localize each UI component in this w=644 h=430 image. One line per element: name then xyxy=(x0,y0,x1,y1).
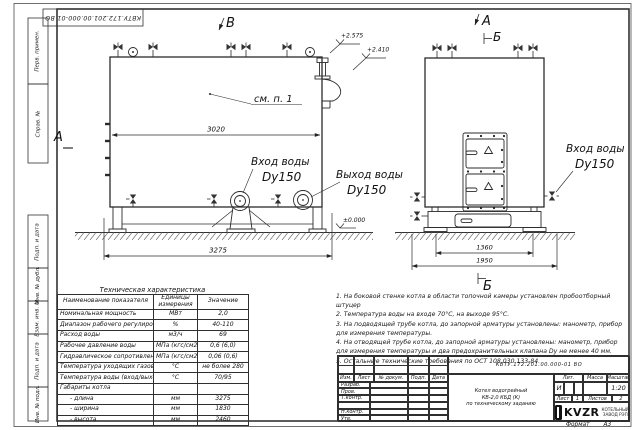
spec-value: 40-110 xyxy=(198,320,249,331)
tb-massa-label: Масса xyxy=(583,374,607,382)
tb-col-list: Лист xyxy=(354,374,374,382)
top-designation-text: КВТУ.172.201.00.000-01 ВО xyxy=(45,14,141,21)
tb-sig-cell xyxy=(429,409,448,416)
spec-value: 3275 xyxy=(198,394,249,405)
furnace-doors xyxy=(463,133,507,211)
elevation-ground: ±0.000 xyxy=(343,217,365,224)
spec-value xyxy=(198,383,249,394)
tb-listov-value: 2 xyxy=(612,395,630,402)
tb-sig-cell xyxy=(408,409,429,416)
note-item: 4. На отводящей трубе котла, до запорной… xyxy=(336,338,629,356)
stamp-podp-data-1: Подп. и дата xyxy=(28,215,48,268)
logo-sub-line2: ЗАВОД РЭП xyxy=(603,412,628,417)
callout-outlet-title: Выход воды xyxy=(336,169,403,181)
stamp-label: Инв. № дубл. xyxy=(35,266,41,304)
spec-row: Гидравлическое сопротивление котлаМПа (к… xyxy=(58,352,249,363)
tb-col-podp: Подп. xyxy=(408,374,429,382)
stamp-inv-dubl: Инв. № дубл. xyxy=(28,268,48,301)
spec-units: МПа (кгс/см2) xyxy=(154,352,198,363)
tb-row-utv: Утв. xyxy=(338,415,370,422)
note-item: 2. Температура воды на входе 70°С, на вы… xyxy=(336,310,629,319)
tb-sig-cell xyxy=(408,415,429,422)
note-item: 3. На подводящей трубе котла, до запорно… xyxy=(336,320,629,338)
callout-inlet-left-title: Вход воды xyxy=(251,156,310,168)
spec-name: Расход воды xyxy=(58,330,154,341)
dim-overall-length: 3275 xyxy=(209,247,227,255)
stamp-podp-data-2: Подп. и дата xyxy=(28,334,48,387)
elevation-top-inner: +2.410 xyxy=(367,47,389,54)
tb-sig-cell xyxy=(429,415,448,422)
tb-row-nkontr: Н.контр. xyxy=(338,409,370,416)
stamp-label: Инв. № подл. xyxy=(35,385,41,423)
spec-units: % xyxy=(154,320,198,331)
dim-base-width: 1360 xyxy=(476,244,493,252)
kvzr-logo-text: KVZR xyxy=(564,406,599,419)
spec-name: - длина xyxy=(58,394,154,405)
stamp-inv-podl: Инв. № подл. xyxy=(28,387,48,421)
drawing-sheet: 3020 3275 1360 1950 +2.575 +2.410 ±0.000… xyxy=(0,0,644,430)
door-bolts xyxy=(467,135,505,209)
format-label: Формат А3 xyxy=(566,422,611,428)
tb-sig-cell xyxy=(408,395,429,402)
spec-value: 0,6 (6,0) xyxy=(198,341,249,352)
tb-change-divider xyxy=(338,365,448,366)
view-label-a-top: А xyxy=(481,14,491,29)
tb-sig-cell xyxy=(370,388,408,395)
tb-sig-cell xyxy=(408,382,429,389)
tb-row-razrab: Разраб. xyxy=(338,382,370,389)
tb-lit-label: Лит. xyxy=(554,374,583,382)
tb-sig-cell xyxy=(429,388,448,395)
spec-name: Температура воды (вход/выход) xyxy=(58,373,154,384)
spec-name: Гидравлическое сопротивление котла xyxy=(58,352,154,363)
spec-name: Номинальная мощность xyxy=(58,309,154,320)
stamp-label: Подп. и дата xyxy=(35,223,41,260)
boiler-front-view xyxy=(410,44,559,232)
tb-sig-cell xyxy=(429,382,448,389)
tb-sig-cell xyxy=(429,402,448,409)
spec-value: 1830 xyxy=(198,405,249,416)
tb-masshtab-label: Масштаб xyxy=(607,374,630,382)
tb-company-cell: KVZR КОТЕЛЬНЫЙ ЗАВОД РЭП xyxy=(554,402,630,422)
stamp-label: Взам. инв. № xyxy=(35,299,41,336)
kvzr-logo-subtext: КОТЕЛЬНЫЙ ЗАВОД РЭП xyxy=(602,407,629,417)
spec-units: °С xyxy=(154,373,198,384)
side-valves-front-view xyxy=(410,192,559,221)
spec-row: - высотамм2460 xyxy=(58,415,249,426)
tb-product-name: Котел водогрейный КВ-2,0 КБД (К) по техн… xyxy=(448,374,554,422)
tb-sig-cell xyxy=(408,388,429,395)
spec-value: 0,06 (0,6) xyxy=(198,352,249,363)
callout-outlet-dn: Dy150 xyxy=(347,183,387,197)
spec-table-title: Техническая характеристика xyxy=(57,286,248,294)
company-logo: KVZR КОТЕЛЬНЫЙ ЗАВОД РЭП xyxy=(555,405,629,420)
boiler-side-view xyxy=(105,43,341,233)
stamp-perv-primen: Перв. примен. xyxy=(28,18,48,84)
product-name-line3: по техническому заданию xyxy=(466,401,536,408)
stamp-vzam-inv: Взам. инв. № xyxy=(28,301,48,334)
stamp-label: Справ. № xyxy=(35,110,41,137)
spec-units: мм xyxy=(154,394,198,405)
spec-units xyxy=(154,383,198,394)
tb-sig-cell xyxy=(370,409,408,416)
elevation-top-outer: +2.575 xyxy=(341,33,363,40)
spec-table: Наименование показателя Единицы измерени… xyxy=(57,294,249,426)
spec-row: - ширинамм1830 xyxy=(58,405,249,416)
tb-sig-cell xyxy=(408,402,429,409)
format-word: Формат xyxy=(566,422,590,428)
elevation-marks xyxy=(330,40,386,229)
tb-sig-cell xyxy=(370,415,408,422)
spec-header-row: Наименование показателя Единицы измерени… xyxy=(58,295,249,310)
tb-col-izm: Изм. xyxy=(338,374,354,382)
title-block: Изм. Лист № докум. Подп. Дата Разраб. Пр… xyxy=(337,355,629,421)
stamp-sprav-no: Справ. № xyxy=(28,84,48,163)
note-item: 1. На боковой стенке котла в области топ… xyxy=(336,292,629,310)
tb-massa-value xyxy=(583,382,607,396)
tb-row-prov: Пров. xyxy=(338,388,370,395)
spec-value: 70/95 xyxy=(198,373,249,384)
tb-sig-cell xyxy=(429,395,448,402)
tb-sig-cell xyxy=(370,402,408,409)
spec-table-block: Техническая характеристика Наименование … xyxy=(57,286,248,426)
view-label-b-top: Б xyxy=(493,30,501,44)
top-designation-box: КВТУ.172.201.00.000-01 ВО xyxy=(43,9,143,26)
spec-name: - ширина xyxy=(58,405,154,416)
ground-hatching xyxy=(75,233,575,241)
spec-col-value: Значение xyxy=(198,295,249,310)
tb-row-tkontr: Т.контр. xyxy=(338,395,370,402)
spec-name: - высота xyxy=(58,415,154,426)
spec-name: Рабочее давление воды xyxy=(58,341,154,352)
support-frame-side-view xyxy=(109,207,326,233)
tb-list-value: 1 xyxy=(572,395,583,402)
tb-col-data: Дата xyxy=(429,374,448,382)
product-name-line1: Котел водогрейный xyxy=(475,388,528,395)
spec-name: Диапазон рабочего регулирования xyxy=(58,320,154,331)
spec-value: 2,0 xyxy=(198,309,249,320)
tb-sig-cell xyxy=(370,382,408,389)
spec-units: МВт xyxy=(154,309,198,320)
spec-name: Габариты котла xyxy=(58,383,154,394)
spec-row: Диапазон рабочего регулирования%40-110 xyxy=(58,320,249,331)
callout-inlet-right-title: Вход воды xyxy=(566,143,625,155)
tb-lit-value: И xyxy=(554,382,564,396)
spec-row: Температура воды (вход/выход)°С70/95 xyxy=(58,373,249,384)
callout-inlet-left-dn: Dy150 xyxy=(262,170,302,184)
kvzr-logo-icon xyxy=(555,405,562,420)
spec-row: - длинамм3275 xyxy=(58,394,249,405)
top-valves-front-view xyxy=(433,44,538,59)
spec-value: 69 xyxy=(198,330,249,341)
spec-units: м3/ч xyxy=(154,330,198,341)
format-value: А3 xyxy=(604,422,612,428)
spec-row: Температура уходящих газов°Сне более 280 xyxy=(58,362,249,373)
spec-value: не более 280 xyxy=(198,362,249,373)
spec-units: мм xyxy=(154,405,198,416)
outlet-pipe-assembly xyxy=(315,58,341,110)
spec-units: мм xyxy=(154,415,198,426)
tb-col-doc: № докум. xyxy=(374,374,408,382)
product-name-line2: КВ-2,0 КБД (К) xyxy=(482,395,520,402)
stamp-label: Перв. примен. xyxy=(35,30,41,71)
stamp-label: Подп. и дата xyxy=(35,342,41,379)
tb-list-label: Лист xyxy=(554,395,572,402)
tb-sig-cell xyxy=(370,395,408,402)
section-label-a-left: А xyxy=(53,130,63,145)
tb-listov-label: Листов xyxy=(583,395,612,402)
tb-row-empty xyxy=(338,402,370,409)
tb-designation: КВТУ.172.201.00.000-01 ВО xyxy=(448,356,630,374)
spec-name: Температура уходящих газов xyxy=(58,362,154,373)
spec-units: МПа (кгс/см2) xyxy=(154,341,198,352)
spec-col-units: Единицы измерения xyxy=(154,295,198,310)
dim-body-length: 3020 xyxy=(207,126,225,134)
spec-row: Расход водым3/ч69 xyxy=(58,330,249,341)
tb-lit-cell xyxy=(564,382,574,396)
view-arrows xyxy=(63,14,492,284)
dim-overall-width: 1950 xyxy=(476,257,493,265)
view-label-v: В xyxy=(226,16,235,31)
tb-masshtab-value: 1:20 xyxy=(607,382,630,396)
callout-see-note: см. п. 1 xyxy=(254,94,293,105)
drain-valves-side-view xyxy=(126,195,281,208)
tb-lit-cell xyxy=(574,382,583,396)
spec-row: Рабочее давление водыМПа (кгс/см2)0,6 (6… xyxy=(58,341,249,352)
spec-units: °С xyxy=(154,362,198,373)
spec-row: Номинальная мощностьМВт2,0 xyxy=(58,309,249,320)
callout-inlet-right-dn: Dy150 xyxy=(575,157,615,171)
spec-row: Габариты котла xyxy=(58,383,249,394)
top-valves-side-view xyxy=(114,43,292,58)
spec-col-name: Наименование показателя xyxy=(58,295,154,310)
spec-value: 2460 xyxy=(198,415,249,426)
